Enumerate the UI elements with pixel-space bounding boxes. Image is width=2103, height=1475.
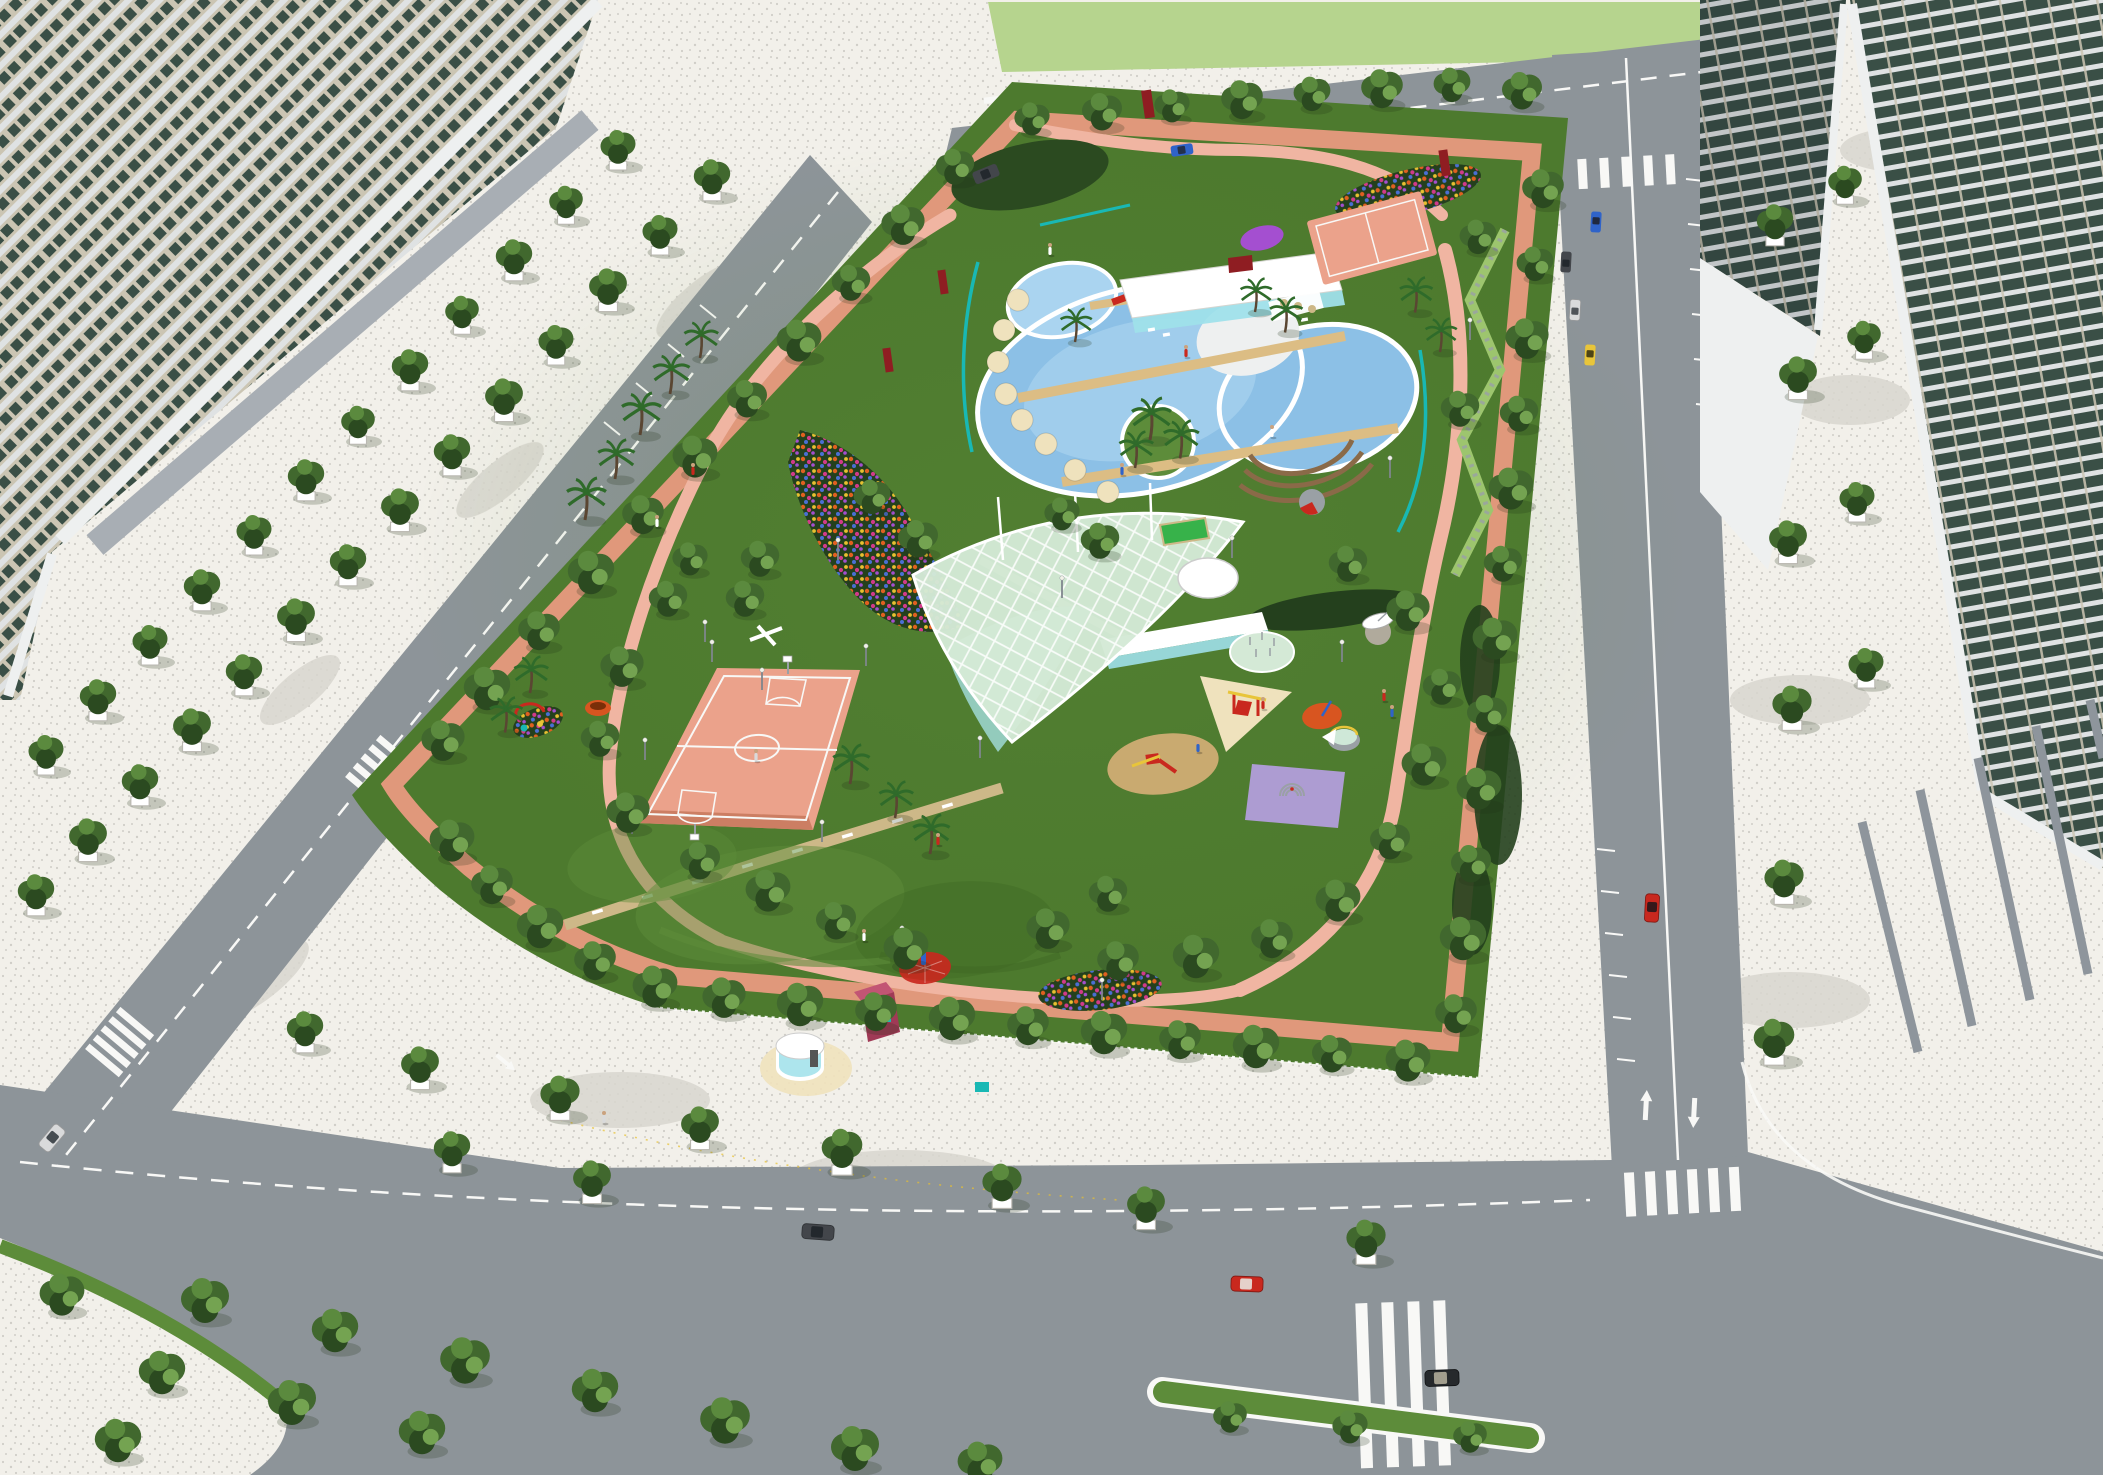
- car-red-parked-south: [1231, 1276, 1264, 1292]
- car-red-east-street: [1644, 894, 1659, 923]
- purple-play-mat: [1245, 764, 1345, 828]
- car-dark-south-street: [802, 1223, 835, 1240]
- rendering-stage: Community Park Master Plan — Aerial 3D R…: [0, 0, 2103, 1475]
- car-black-crosswalk: [1425, 1369, 1460, 1386]
- round-pavilion: [1299, 489, 1325, 515]
- car-gray-east-street: [1560, 251, 1571, 272]
- car-white-east-street: [1569, 299, 1580, 320]
- car-yellow-east-street: [1584, 344, 1595, 365]
- park-aerial-scene: Community Park Master Plan — Aerial 3D R…: [0, 0, 2103, 1475]
- rooftop-red-volume: [1228, 255, 1253, 273]
- car-blue-east-street: [1590, 211, 1601, 232]
- cyan-bin: [975, 1082, 989, 1092]
- round-platform: [1178, 558, 1238, 598]
